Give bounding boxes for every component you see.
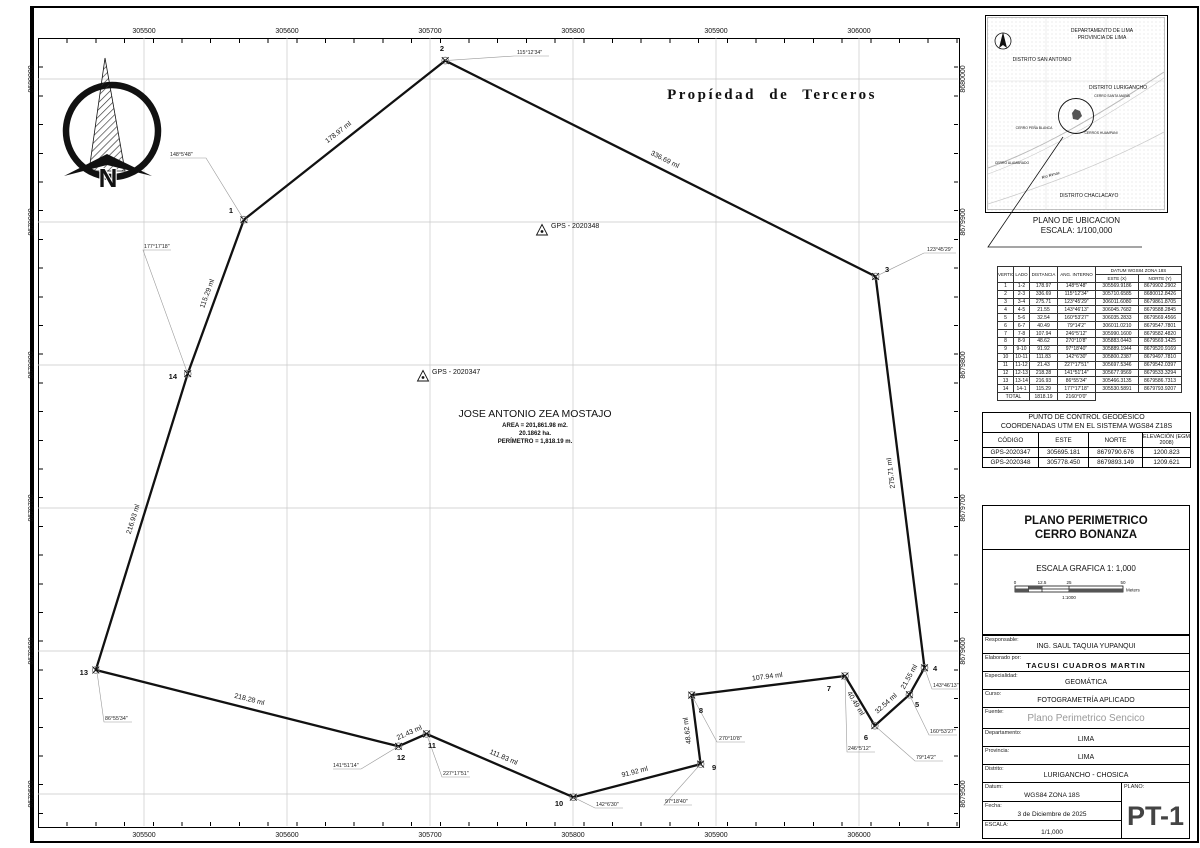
axis-label: 306000 (847, 832, 870, 839)
table-cell: 91.92 (1030, 345, 1058, 353)
field-value: LURIGANCHO - CHOSICA (983, 772, 1189, 779)
table-cell: 8679793.9207 (1139, 385, 1182, 393)
table-cell: 2 (998, 290, 1014, 298)
divider (983, 549, 1189, 550)
table-cell: 336.69 (1030, 290, 1058, 298)
table-cell: 8679569.1425 (1139, 338, 1182, 346)
scale-unit: Meters (1126, 588, 1141, 593)
vertex-number: 9 (712, 763, 716, 772)
table-cell: 21.43 (1030, 361, 1058, 369)
table-cell: 8679586.7313 (1139, 377, 1182, 385)
table-cell: 305883.0443 (1096, 338, 1139, 346)
gps-label: GPS - 2020347 (432, 369, 480, 376)
row-escala: ESCALA: 1/1,000 (982, 820, 1122, 839)
field-value: TACUSI CUADROS MARTIN (983, 661, 1189, 670)
axis-label: 305800 (561, 28, 584, 35)
angle-label: 177°17'18" (144, 244, 170, 250)
plan-title-line1: PLANO PERIMETRICO (983, 514, 1189, 528)
table-cell: 11 (998, 361, 1014, 369)
table-cell: 305530.5891 (1096, 385, 1139, 393)
graphic-scale-title: ESCALA GRAFICA 1: 1,000 (983, 564, 1189, 573)
table-row: 55-632.54160°53'27"306035.28338679569.45… (998, 314, 1182, 322)
table-cell: 1209.621 (1143, 458, 1191, 468)
axis-label: 8680000 (28, 65, 35, 92)
field-label: ESCALA: (985, 822, 1008, 828)
table-cell: 8679547.7801 (1139, 322, 1182, 330)
table-cell: 32.54 (1030, 314, 1058, 322)
table-cell: 8679520.9169 (1139, 345, 1182, 353)
table-cell: 14 (998, 385, 1014, 393)
total-label: TOTAL (998, 393, 1030, 401)
angle-label: 142°6'30" (596, 802, 619, 808)
table-cell: GPS-2020348 (983, 458, 1039, 468)
side-label: 91.92 ml (621, 766, 649, 780)
angle-label: 86°55'34" (105, 716, 128, 722)
field-value: FOTOGRAMETRÍA APLICADO (983, 697, 1189, 704)
axis-label: 8679600 (960, 637, 967, 664)
row-provincia: Provincia: LIMA (982, 746, 1190, 765)
plan-title-line2: CERRO BONANZA (983, 528, 1189, 542)
table-cell: 227°17'51" (1058, 361, 1096, 369)
table-row: 66-740.4979°14'2"306011.02108679547.7801 (998, 322, 1182, 330)
table-row: 1212-13218.28141°51'14"305677.9569867953… (998, 369, 1182, 377)
col-header: ESTE (X) (1096, 274, 1139, 282)
table-cell: 8679902.2902 (1139, 282, 1182, 290)
table-cell: 305889.1944 (1096, 345, 1139, 353)
table-cell: 79°14'2" (1058, 322, 1096, 330)
angle-label: 148°5'48" (170, 152, 193, 158)
table-cell: 9 (998, 345, 1014, 353)
vertex-number: 13 (80, 668, 88, 677)
table-cell: 305677.9569 (1096, 369, 1139, 377)
table-cell: 3 (998, 298, 1014, 306)
vertex-number: 10 (555, 799, 563, 808)
angle-label: 115°12'34" (517, 50, 542, 56)
survey-plan-sheet: { "sheet": { "easting_labels": ["305500"… (0, 0, 1200, 848)
table-cell: 8679497.7810 (1139, 353, 1182, 361)
vertex-number: 14 (169, 372, 178, 381)
side-label: 32.54 ml (874, 692, 899, 715)
table-cell: 8679582.4820 (1139, 330, 1182, 338)
total-angle: 2160°0'0" (1058, 393, 1096, 401)
table-cell: 8679893.149 (1089, 458, 1143, 468)
axis-label: 305700 (418, 28, 441, 35)
owner-perimeter: PERÍMETRO = 1,818.19 m. (498, 437, 573, 445)
axis-label: 305600 (275, 832, 298, 839)
side-label: 21.55 ml (900, 663, 919, 690)
side-label: 111.83 ml (488, 749, 518, 767)
vertex-table: VERTICE LADO DISTANCIA ANG. INTERNO DATU… (997, 266, 1182, 401)
plan-sheet-code: PT-1 (1122, 801, 1189, 832)
gps-triangle-icon (537, 225, 548, 236)
field-value: WGS84 ZONA 18S (983, 792, 1121, 799)
angle-label: 123°45'29" (927, 247, 953, 253)
row-datum: Datum: WGS84 ZONA 18S (982, 782, 1122, 802)
north-letter: N (99, 163, 118, 193)
table-title-row: PUNTO DE CONTROL GEODÉSICO COORDENADAS U… (983, 413, 1191, 433)
axis-label: 8679800 (28, 351, 35, 378)
axis-label: 305800 (561, 832, 584, 839)
table-row: 1313-14216.9386°55'34"305466.31358679586… (998, 377, 1182, 385)
table-cell: 8-9 (1014, 338, 1030, 346)
row-fuente: Fuente: Plano Perimetrico Sencico (982, 707, 1190, 729)
third-party-label: Propíedad de Terceros (667, 87, 877, 103)
angle-label: 97°18'40" (665, 799, 688, 805)
axis-label: 8679600 (28, 637, 35, 664)
vertex-number: 2 (440, 44, 444, 53)
table-cell: 12-13 (1014, 369, 1030, 377)
col-header: NORTE (Y) (1139, 274, 1182, 282)
table-cell: 2-3 (1014, 290, 1030, 298)
row-distrito: Distrito: LURIGANCHO - CHOSICA (982, 764, 1190, 783)
row-elaborado: Elaborado por: TACUSI CUADROS MARTIN (982, 653, 1190, 672)
table-cell: 12 (998, 369, 1014, 377)
table-cell: 21.55 (1030, 306, 1058, 314)
axis-label: 306000 (847, 28, 870, 35)
main-drawing: 305500 305600 305700 305800 305900 30600… (0, 0, 975, 848)
col-header: DATUM WGS84 ZONA 18S (1096, 267, 1182, 275)
field-label: Datum: (985, 784, 1003, 790)
table-row: 1010-11111.83142°6'30"305800.23878679497… (998, 353, 1182, 361)
plano-box: PLANO: PT-1 (1121, 782, 1190, 839)
table-row: 11-2178.97148°5'48"305569.91868679902.29… (998, 282, 1182, 290)
control-point-table: PUNTO DE CONTROL GEODÉSICO COORDENADAS U… (982, 412, 1191, 468)
table-cell: 305990.1600 (1096, 330, 1139, 338)
vertex-number: 12 (397, 753, 405, 762)
table-cell: 305466.3135 (1096, 377, 1139, 385)
table-cell: 11-12 (1014, 361, 1030, 369)
table-cell: 107.94 (1030, 330, 1058, 338)
vertex-number: 5 (915, 700, 919, 709)
axis-label: 8679900 (28, 208, 35, 235)
scale-tick: 12.5 (1038, 580, 1047, 585)
table-cell: 306045.7682 (1096, 306, 1139, 314)
table-cell: 4-5 (1014, 306, 1030, 314)
table-cell: 5 (998, 314, 1014, 322)
table-cell: 123°45'29" (1058, 298, 1096, 306)
table-cell: 1 (998, 282, 1014, 290)
table-cell: 48.62 (1030, 338, 1058, 346)
table-cell: 160°53'27" (1058, 314, 1096, 322)
vertex-number: 1 (229, 206, 233, 215)
owner-area-ha: 20.1862 ha. (519, 431, 551, 437)
angle-label: 270°10'8" (719, 736, 742, 742)
table-cell: 13 (998, 377, 1014, 385)
vertex-number: 11 (428, 741, 436, 750)
table-row: 77-8107.94246°5'12"305990.16008679582.48… (998, 330, 1182, 338)
table-cell: 305569.9186 (1096, 282, 1139, 290)
axis-label: 8679700 (28, 494, 35, 521)
angle-label: 227°17'51" (443, 771, 469, 777)
total-distance: 1818.19 (1030, 393, 1058, 401)
table-row: GPS-2020347305695.1818679790.6761200.823 (983, 448, 1191, 458)
table-cell: 306011.6080 (1096, 298, 1139, 306)
table-cell: 115°12'34" (1058, 290, 1096, 298)
angle-label: 246°5'12" (848, 746, 871, 752)
field-label: Fecha: (985, 803, 1002, 809)
control-title-line1: PUNTO DE CONTROL GEODÉSICO (983, 414, 1190, 423)
table-cell: 306035.2833 (1096, 314, 1139, 322)
field-value: ING. SAUL TAQUIA YUPANQUI (983, 643, 1189, 650)
axis-label: 305900 (704, 832, 727, 839)
axis-label: 8679900 (960, 208, 967, 235)
plan-title-box: PLANO PERIMETRICO CERRO BONANZA ESCALA G… (982, 505, 1190, 635)
table-cell: 97°18'40" (1058, 345, 1096, 353)
table-cell: 218.28 (1030, 369, 1058, 377)
table-cell: 8679569.4566 (1139, 314, 1182, 322)
table-cell: 6-7 (1014, 322, 1030, 330)
scale-tick: 50 (1120, 580, 1126, 585)
axis-label: 8680000 (960, 65, 967, 92)
table-row: 44-521.55143°46'13"306045.76828679588.28… (998, 306, 1182, 314)
table-row: GPS-2020348305778.4508679893.1491209.621 (983, 458, 1191, 468)
table-cell: 8 (998, 338, 1014, 346)
scale-tick: 25 (1066, 580, 1072, 585)
table-cell: 10-11 (1014, 353, 1030, 361)
table-row: 1111-1221.43227°17'51"305697.53468679542… (998, 361, 1182, 369)
row-responsable: Responsable: ING. SAUL TAQUIA YUPANQUI (982, 635, 1190, 654)
row-fecha: Fecha: 3 de Diciembre de 2025 (982, 801, 1122, 821)
table-cell: 9-10 (1014, 345, 1030, 353)
col-header: VERTICE (998, 267, 1014, 283)
scale-bar: 0 12.5 25 50 Meters 1:1000 (1001, 577, 1171, 607)
axis-label: 305700 (418, 832, 441, 839)
table-cell: 178.97 (1030, 282, 1058, 290)
axis-label: 8679800 (960, 351, 967, 378)
table-cell: 1200.823 (1143, 448, 1191, 458)
total-row: TOTAL 1818.19 2160°0'0" (998, 393, 1182, 401)
table-cell: 5-6 (1014, 314, 1030, 322)
side-label: 336.69 ml (649, 150, 680, 170)
table-row: 88-948.62270°10'8"305883.04438679569.142… (998, 338, 1182, 346)
vertex-number: 6 (864, 733, 868, 742)
table-cell: 14-1 (1014, 385, 1030, 393)
table-cell: 270°10'8" (1058, 338, 1096, 346)
gps-label: GPS - 2020348 (551, 223, 599, 230)
table-cell: 115.29 (1030, 385, 1058, 393)
table-cell: 10 (998, 353, 1014, 361)
field-value: GEOMÁTICA (983, 679, 1189, 686)
table-cell: 305778.450 (1039, 458, 1089, 468)
table-cell: 4 (998, 306, 1014, 314)
row-departamento: Departamento: LIMA (982, 728, 1190, 747)
table-cell: 8679588.2845 (1139, 306, 1182, 314)
side-label: 178.97 ml (324, 120, 353, 145)
table-cell: 8679542.0397 (1139, 361, 1182, 369)
table-cell: 8679861.8705 (1139, 298, 1182, 306)
table-cell: 1-2 (1014, 282, 1030, 290)
table-row: 22-3336.69115°12'34"305710.65858680012.8… (998, 290, 1182, 298)
table-cell: 3-4 (1014, 298, 1030, 306)
table-row: 1414-1115.29177°17'18"305530.58918679793… (998, 385, 1182, 393)
table-cell: 177°17'18" (1058, 385, 1096, 393)
axis-label: 8679500 (960, 780, 967, 807)
table-cell: 275.71 (1030, 298, 1058, 306)
locmap-leader (975, 15, 1200, 255)
vertex-number: 8 (699, 706, 703, 715)
table-cell: 8680012.8426 (1139, 290, 1182, 298)
axis-label: 305900 (704, 28, 727, 35)
table-cell: 6 (998, 322, 1014, 330)
side-label: 21.43 ml (396, 724, 424, 741)
vertex-number: 4 (933, 664, 938, 673)
col-header: ANG. INTERNO (1058, 267, 1096, 283)
side-label: 107.94 ml (752, 672, 784, 683)
axis-label: 305500 (132, 832, 155, 839)
field-value: LIMA (983, 754, 1189, 761)
col-header: LADO (1014, 267, 1030, 283)
field-label: PLANO: (1124, 784, 1144, 790)
angle-label: 160°53'27" (930, 729, 956, 735)
table-cell: 8679533.3294 (1139, 369, 1182, 377)
col-header: NORTE (1089, 433, 1143, 448)
table-cell: 246°5'12" (1058, 330, 1096, 338)
row-especialidad: Especialidad: GEOMÁTICA (982, 671, 1190, 690)
table-cell: 141°51'14" (1058, 369, 1096, 377)
angle-label: 141°51'14" (333, 763, 359, 769)
col-header: DISTANCIA (1030, 267, 1058, 283)
col-header: ESTE (1039, 433, 1089, 448)
angle-label: 79°14'2" (916, 755, 936, 761)
vertex-number: 7 (827, 684, 831, 693)
col-header: ELEVACIÓN (EGM 2008) (1143, 433, 1191, 448)
table-cell: 13-14 (1014, 377, 1030, 385)
scale-ratio: 1:1000 (1062, 595, 1076, 600)
table-cell: 7-8 (1014, 330, 1030, 338)
axis-label: 8679700 (960, 494, 967, 521)
table-cell: 7 (998, 330, 1014, 338)
table-row: 33-4275.71123°45'29"306011.60808679861.8… (998, 298, 1182, 306)
table-cell: 148°5'48" (1058, 282, 1096, 290)
axis-label: 8679500 (28, 780, 35, 807)
table-cell: 142°6'30" (1058, 353, 1096, 361)
angle-label: 143°46'13" (933, 683, 959, 689)
field-value: LIMA (983, 736, 1189, 743)
field-value: Plano Perimetrico Sencico (983, 713, 1189, 724)
gps-triangle-icon (418, 371, 429, 382)
vertex-number: 3 (885, 265, 889, 274)
table-cell: 86°55'34" (1058, 377, 1096, 385)
table-cell: 305697.5346 (1096, 361, 1139, 369)
row-curso: Curso: FOTOGRAMETRÍA APLICADO (982, 689, 1190, 708)
table-cell: GPS-2020347 (983, 448, 1039, 458)
table-row: 99-1091.9297°18'40"305889.19448679520.91… (998, 345, 1182, 353)
table-cell: 40.49 (1030, 322, 1058, 330)
table-cell: 143°46'13" (1058, 306, 1096, 314)
table-cell: 306011.0210 (1096, 322, 1139, 330)
field-value: 1/1,000 (983, 829, 1121, 836)
table-header-row: CÓDIGO ESTE NORTE ELEVACIÓN (EGM 2008) (983, 433, 1191, 448)
axis-label: 305500 (132, 28, 155, 35)
axis-label: 305600 (275, 28, 298, 35)
table-cell: 305800.2387 (1096, 353, 1139, 361)
table-cell: 216.93 (1030, 377, 1058, 385)
col-header: CÓDIGO (983, 433, 1039, 448)
control-title-line2: COORDENADAS UTM EN EL SISTEMA WGS84 Z18S (983, 423, 1190, 432)
side-label: 275.71 ml (886, 457, 897, 489)
table-cell: 305710.6585 (1096, 290, 1139, 298)
side-label: 48.62 ml (683, 716, 693, 744)
owner-area-m2: AREA = 201,861.98 m2. (502, 423, 568, 429)
table-header-row: VERTICE LADO DISTANCIA ANG. INTERNO DATU… (998, 267, 1182, 275)
field-value: 3 de Diciembre de 2025 (983, 811, 1121, 818)
table-cell: 305695.181 (1039, 448, 1089, 458)
owner-name: JOSE ANTONIO ZEA MOSTAJO (458, 408, 611, 420)
scale-tick: 0 (1014, 580, 1017, 585)
table-cell: 8679790.676 (1089, 448, 1143, 458)
table-cell: 111.83 (1030, 353, 1058, 361)
